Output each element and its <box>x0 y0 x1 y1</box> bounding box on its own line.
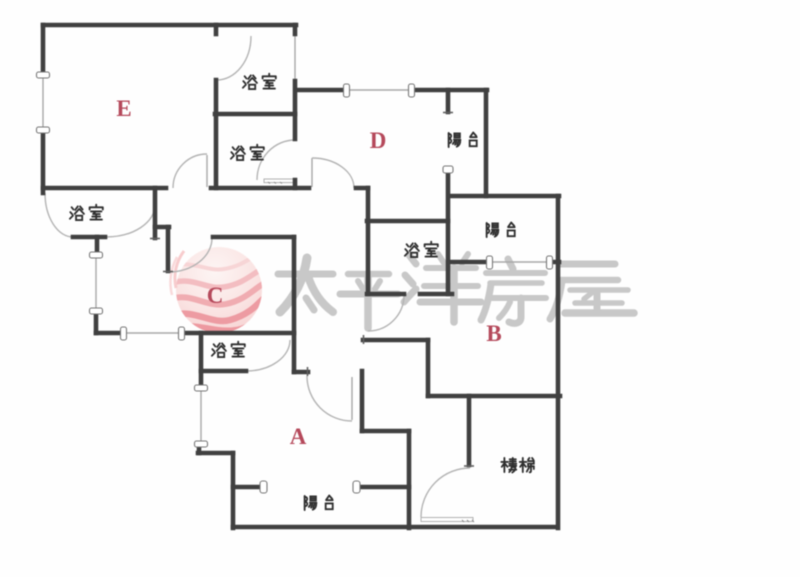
svg-text:D: D <box>370 128 387 153</box>
svg-text:B: B <box>486 321 501 346</box>
svg-text:C: C <box>207 283 224 308</box>
svg-text:A: A <box>290 424 307 449</box>
svg-text:E: E <box>116 96 131 121</box>
